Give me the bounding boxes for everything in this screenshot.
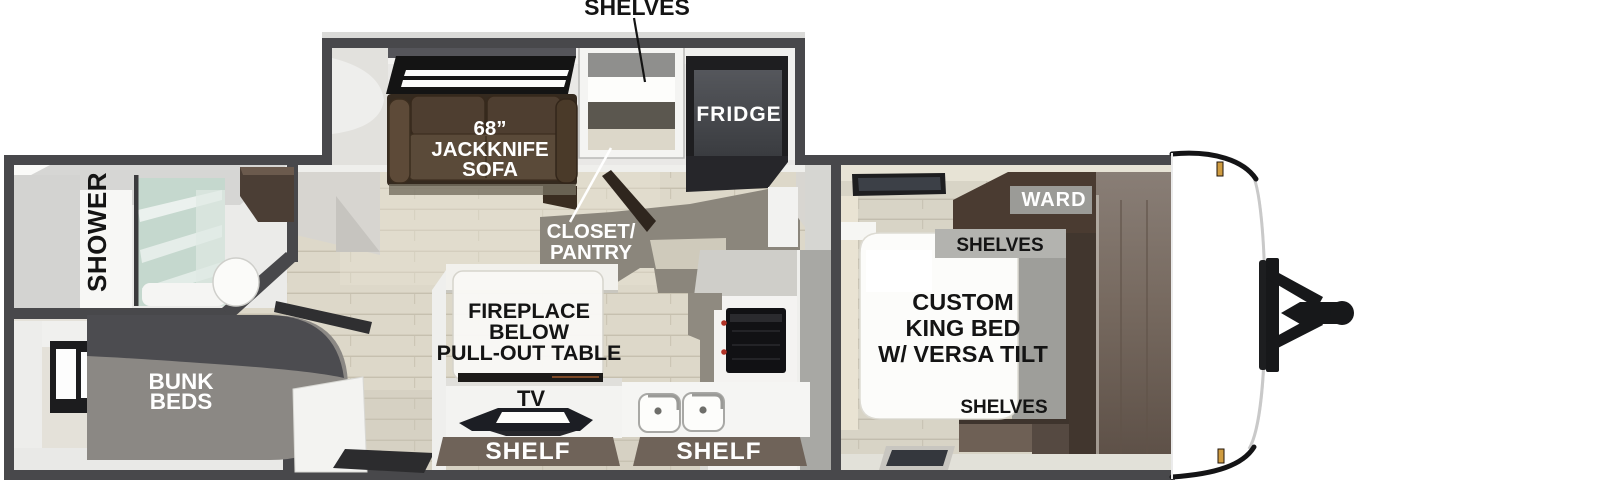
svg-text:SHELVES: SHELVES [584, 0, 690, 20]
svg-text:SHELF: SHELF [676, 438, 761, 465]
svg-text:PULL-OUT TABLE: PULL-OUT TABLE [437, 341, 622, 365]
svg-text:SHELF: SHELF [485, 438, 570, 465]
svg-text:PANTRY: PANTRY [550, 241, 632, 264]
svg-text:TV: TV [517, 386, 545, 411]
svg-text:KING BED: KING BED [906, 315, 1021, 341]
svg-text:SOFA: SOFA [462, 158, 518, 181]
svg-text:SHELVES: SHELVES [956, 235, 1043, 256]
svg-text:WARD: WARD [1021, 189, 1086, 211]
svg-text:CLOSET/: CLOSET/ [547, 220, 636, 243]
svg-text:W/ VERSA TILT: W/ VERSA TILT [878, 341, 1048, 367]
svg-text:68”: 68” [473, 117, 506, 140]
svg-text:BEDS: BEDS [150, 389, 213, 414]
svg-text:CUSTOM: CUSTOM [912, 289, 1013, 315]
svg-text:SHELVES: SHELVES [960, 397, 1047, 418]
svg-text:SHOWER: SHOWER [82, 172, 112, 292]
svg-text:FRIDGE: FRIDGE [696, 103, 781, 126]
